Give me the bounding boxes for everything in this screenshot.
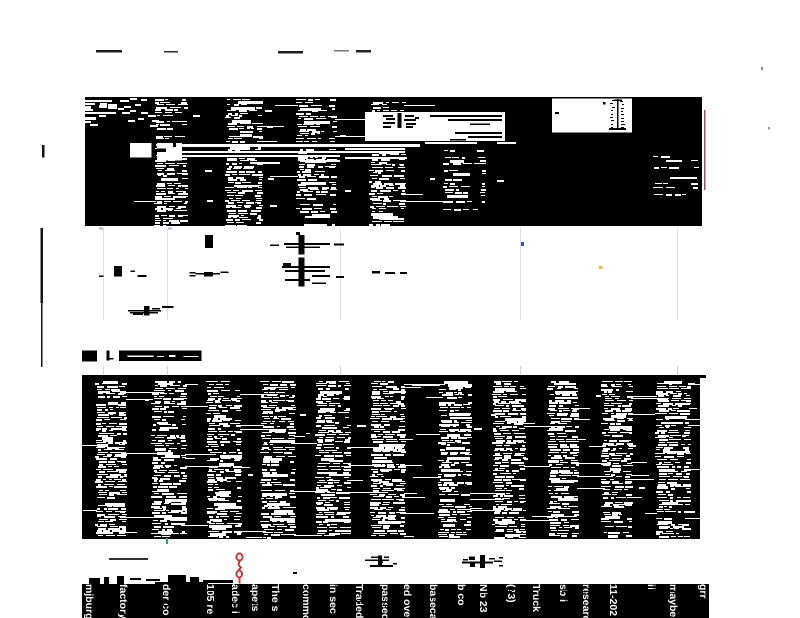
svg-text:research: research — [580, 584, 592, 618]
svg-text:basecat: basecat — [427, 584, 439, 618]
svg-text:maybe: maybe — [667, 584, 679, 617]
svg-text:in sec: in sec — [327, 584, 339, 614]
svg-text:ed over: ed over — [401, 584, 413, 618]
svg-text:ii: ii — [645, 584, 657, 590]
svg-text:Nb 23: Nb 23 — [477, 584, 489, 613]
svg-text:sb i: sb i — [557, 584, 569, 602]
svg-text:mjburg: mjburg — [83, 584, 95, 618]
svg-text:(23): (23) — [505, 584, 517, 603]
svg-text:adec i: adec i — [229, 584, 241, 614]
svg-text:grr: grr — [697, 584, 709, 599]
svg-text:der co: der co — [160, 584, 172, 616]
svg-text:factory: factory — [117, 584, 129, 618]
svg-text:The s: The s — [269, 584, 281, 612]
svg-text:105 re: 105 re — [204, 584, 216, 615]
svg-text:b co: b co — [455, 584, 467, 606]
svg-text:common: common — [300, 584, 312, 618]
svg-text:apets: apets — [249, 584, 261, 612]
svg-text:11-202: 11-202 — [607, 584, 619, 616]
